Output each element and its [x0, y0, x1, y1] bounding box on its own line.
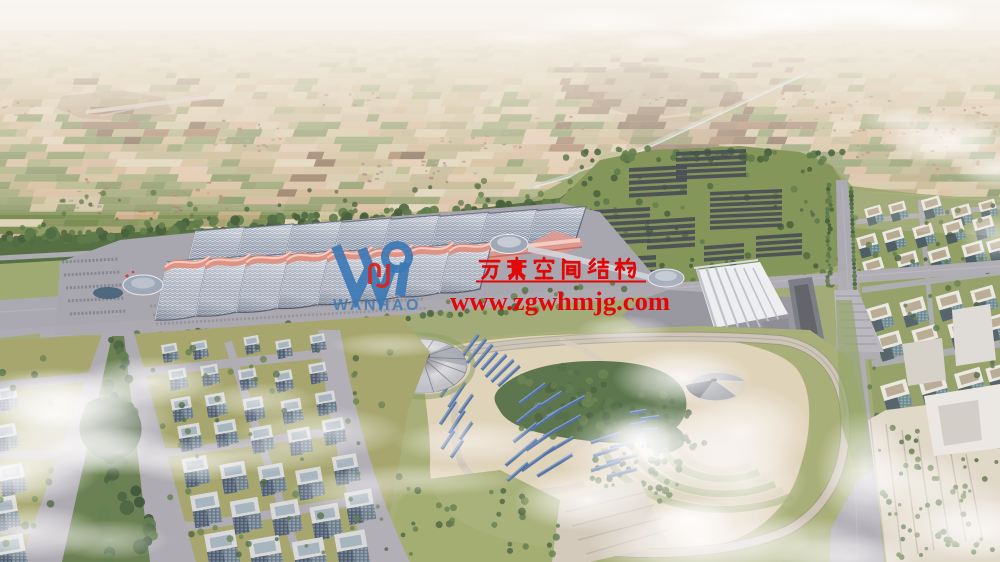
svg-text:www.zgwhmjg.com: www.zgwhmjg.com [450, 287, 670, 316]
svg-text:WANHAO: WANHAO [333, 297, 421, 314]
